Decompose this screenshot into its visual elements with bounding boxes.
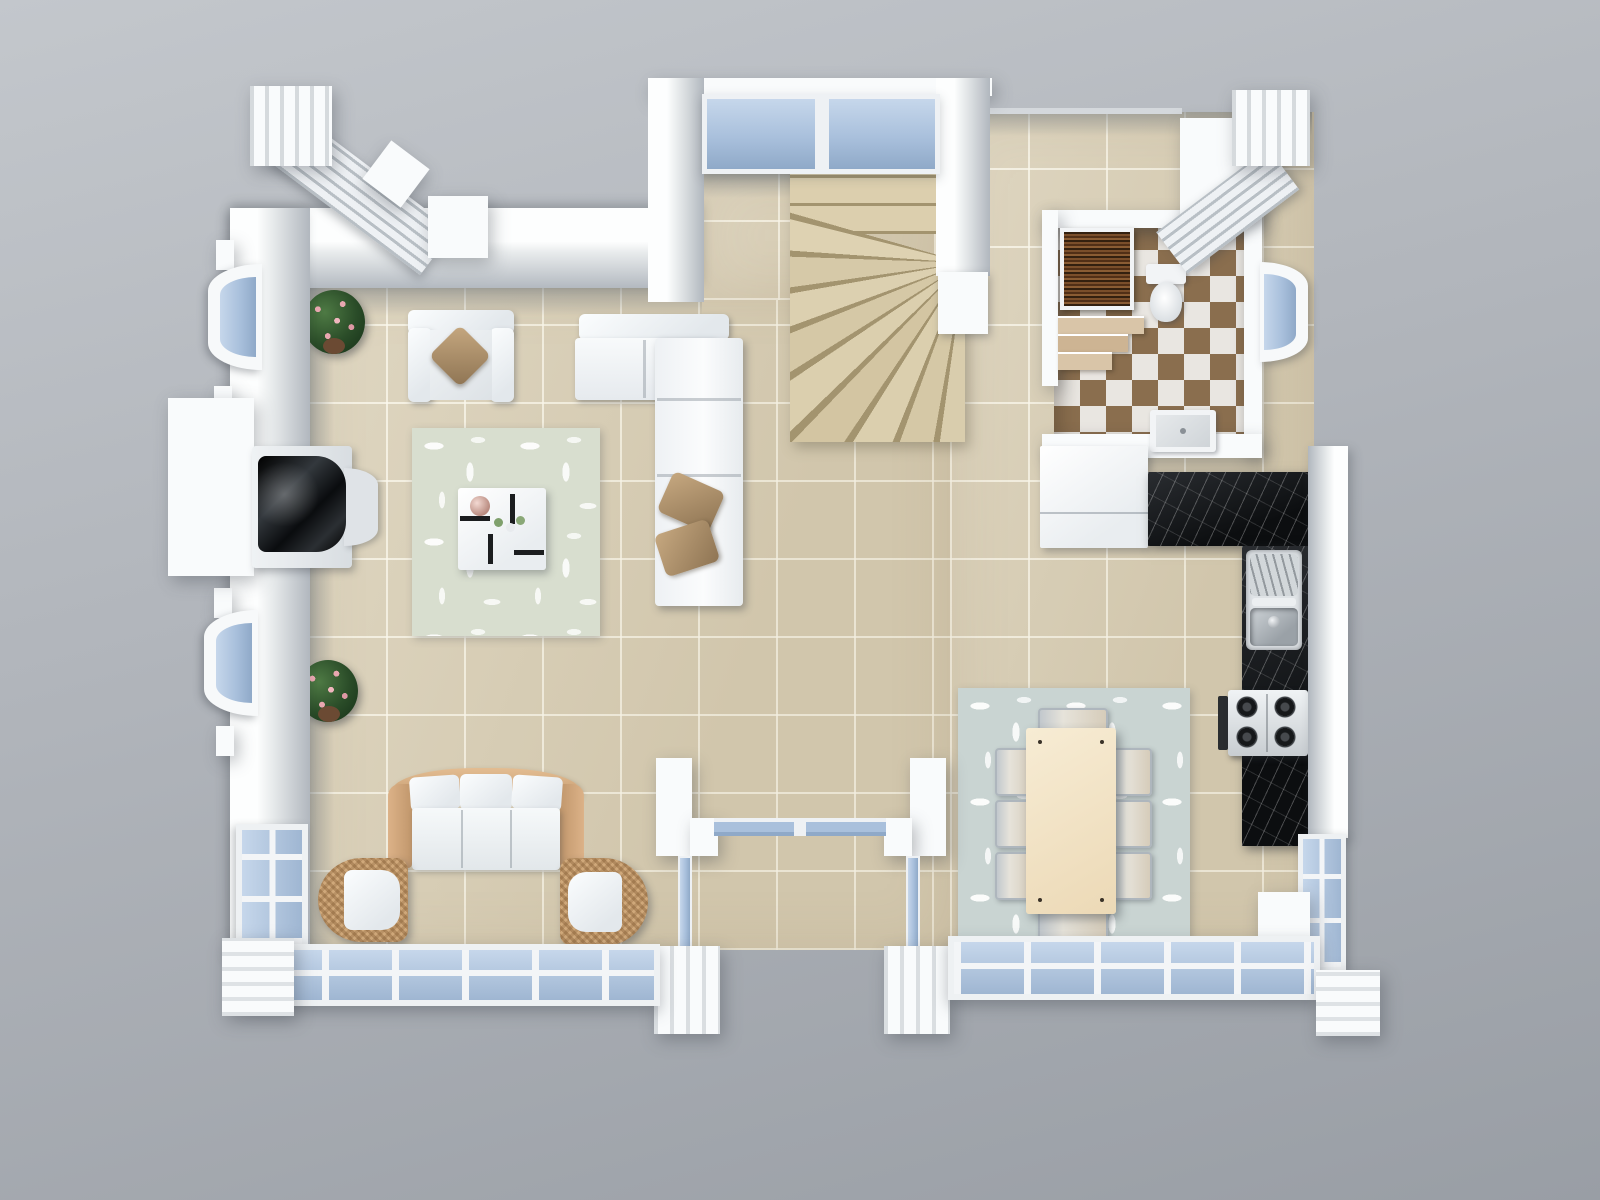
- fireplace-insert: [258, 456, 346, 552]
- sectional-sofa: [575, 314, 743, 594]
- bay-window-east: [1260, 262, 1308, 362]
- shower-drain: [1180, 428, 1186, 434]
- stair-window-glass: [707, 99, 935, 169]
- bay-window-glass: [220, 277, 256, 357]
- dining-chair: [1112, 800, 1152, 848]
- stove-burner: [1274, 696, 1296, 718]
- wall-stair-stub: [938, 272, 988, 334]
- bath-step: [1058, 316, 1144, 334]
- counter-top-horizontal: [1148, 472, 1314, 546]
- table-slot: [460, 516, 490, 521]
- cup: [506, 523, 515, 532]
- table-dot: [1038, 898, 1042, 902]
- wicker-chair-right: [560, 858, 648, 946]
- entry-pillar-right: [910, 758, 946, 856]
- cushion-divider: [643, 340, 646, 398]
- wicker-cushion: [344, 870, 400, 930]
- dining-table: [1026, 728, 1116, 914]
- wall-stairbay-east: [936, 78, 990, 276]
- kitchen-cabinet: [1040, 446, 1148, 548]
- sofa-back-pillow: [511, 774, 563, 811]
- table-slot: [488, 534, 493, 564]
- entry-glass-stile: [794, 818, 806, 836]
- table-slot: [510, 494, 515, 524]
- window-wall-south-left: [246, 944, 660, 1006]
- sink-drainer: [1250, 554, 1298, 596]
- chimney-left: [250, 86, 332, 166]
- toilet-tank: [1146, 264, 1186, 284]
- porch-glass-right: [906, 856, 920, 954]
- sofa-back-pillow: [409, 774, 461, 811]
- window-glass-grid: [242, 830, 302, 944]
- teapot: [470, 496, 490, 516]
- oven-handle: [1218, 696, 1228, 750]
- wardrobe: [1060, 228, 1134, 310]
- wicker-chair-left: [318, 858, 408, 942]
- table-slot: [514, 550, 544, 555]
- stove-burner: [1274, 726, 1296, 748]
- shower-tray: [1150, 410, 1216, 452]
- plant-pot: [323, 338, 345, 354]
- cup: [494, 518, 503, 527]
- armchair: [408, 310, 514, 402]
- cup: [516, 516, 525, 525]
- sofa-back-cushion: [579, 314, 729, 340]
- sink-drain: [1268, 616, 1280, 628]
- floor-plan-render: [0, 0, 1600, 1200]
- bath-step: [1058, 334, 1128, 352]
- corner-pillar-southeast: [1316, 970, 1380, 1036]
- stove-seam: [1266, 694, 1268, 752]
- bathroom-wall-west: [1042, 210, 1058, 386]
- wicker-cushion: [568, 872, 622, 932]
- wall-shadow: [308, 286, 334, 950]
- sofa-seat-cushions: [412, 808, 560, 870]
- sink-faucet-deck: [1252, 598, 1296, 606]
- dining-chair: [1112, 852, 1152, 900]
- entry-pillar-right-foot: [884, 818, 912, 856]
- wall-east-kitchen: [1308, 446, 1348, 838]
- table-dot: [1100, 740, 1104, 744]
- bay-window-glass: [1264, 274, 1296, 350]
- stove: [1228, 690, 1308, 756]
- armchair-arm: [408, 328, 432, 402]
- toilet-bowl: [1150, 282, 1182, 322]
- wood-sofa: [392, 768, 580, 874]
- plant-pot: [318, 706, 340, 722]
- entry-glass-partition: [714, 818, 886, 836]
- bay-window-glass: [216, 623, 252, 703]
- sink-unit: [1246, 550, 1302, 650]
- cabinet-seam: [1040, 512, 1148, 514]
- cushion-divider: [461, 810, 463, 868]
- window-west-lower: [236, 824, 308, 950]
- dining-chair: [1112, 748, 1152, 796]
- armchair-arm: [490, 328, 514, 402]
- stair-window-frame: [702, 94, 940, 174]
- porch-pillar-right: [884, 946, 950, 1034]
- fireplace-surround-bump: [344, 468, 378, 546]
- window-wall-south-right: [948, 936, 1320, 1000]
- bath-step: [1058, 352, 1112, 370]
- sofa-wood-arm: [560, 784, 584, 868]
- cushion-divider: [510, 810, 512, 868]
- porch-glass-left: [678, 856, 692, 954]
- sofa-back-pillow: [460, 774, 512, 810]
- coffee-table: [458, 488, 546, 570]
- bay-window-west-top: [208, 264, 262, 370]
- stove-burner: [1236, 696, 1258, 718]
- porch-pillar-left: [654, 946, 720, 1034]
- window-glass-grid: [954, 942, 1314, 994]
- window-glass-grid: [252, 950, 654, 1000]
- entry-pillar-left: [656, 758, 692, 856]
- bay-window-west-bottom: [204, 610, 258, 716]
- cushion-divider: [657, 474, 741, 477]
- corner-pillar-southwest: [222, 938, 294, 1016]
- sofa-wood-arm: [388, 784, 412, 868]
- wall-pilaster: [216, 726, 234, 756]
- fireplace-chimney-base: [168, 398, 254, 576]
- wall-stairbay-west: [648, 78, 704, 302]
- stove-burner: [1236, 726, 1258, 748]
- chimney-duct-end: [428, 196, 488, 258]
- cushion-divider: [657, 398, 741, 401]
- table-dot: [1038, 740, 1042, 744]
- table-dot: [1100, 898, 1104, 902]
- wall-pilaster: [216, 240, 234, 270]
- chimney-right: [1232, 90, 1310, 166]
